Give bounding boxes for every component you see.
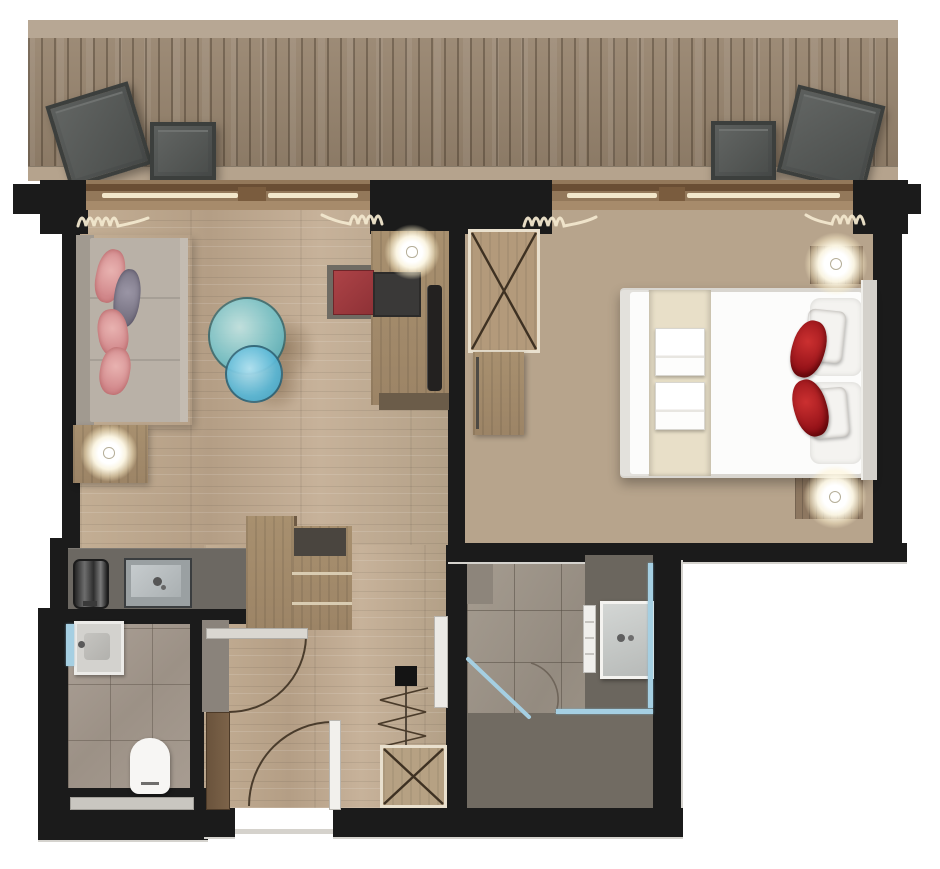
balcony: [0, 0, 940, 182]
red-seat: [333, 270, 374, 315]
ceiling-lamp-bedroom-bottom: [803, 465, 867, 529]
window-frame: [86, 184, 370, 191]
bathroom-corner-patch: [467, 562, 493, 604]
wc-bench: [70, 797, 194, 810]
wc-faucet-icon: [78, 641, 85, 648]
wc-sink-basin: [84, 633, 110, 660]
wall-bathroom-left: [446, 545, 467, 811]
minibar-fridge: [294, 528, 346, 556]
entry-threshold: [235, 829, 333, 834]
shower-floor: [467, 713, 653, 810]
chair-cushion: [158, 130, 208, 172]
toilet-flush-plate: [141, 782, 159, 785]
towel-set: [655, 328, 705, 376]
wall-left-protrusion: [13, 184, 50, 214]
wall-bedroom-right: [873, 234, 902, 543]
chair-cushion: [55, 91, 142, 178]
bathroom-door-leaf: [434, 616, 448, 708]
headboard: [861, 280, 877, 480]
bedroom-window: [552, 180, 853, 210]
window-sill-inner: [86, 201, 370, 210]
minibar-unit: [292, 526, 352, 630]
kitchen-tall-cabinet: [246, 516, 297, 632]
window-sill-inner: [552, 201, 853, 210]
bathroom-sink: [600, 601, 654, 679]
double-bed: [620, 288, 870, 478]
minibar-shelf: [292, 572, 352, 575]
toilet: [130, 738, 170, 794]
chair-cushion: [719, 129, 768, 172]
tv-panel-base: [379, 393, 449, 410]
bathroom-mirror: [648, 563, 653, 708]
floor-plan-canvas: [0, 0, 940, 869]
wall-bottom-entry-left: [204, 808, 235, 839]
living-window: [86, 180, 370, 210]
balcony-top-edge: [28, 20, 898, 40]
kitchen-sink: [124, 558, 192, 608]
wall-right-protrusion: [893, 184, 921, 214]
entry-door-leaf: [329, 720, 341, 810]
window-frame: [552, 184, 853, 191]
hall-door-threshold: [206, 628, 308, 639]
wc-door-leaf: [206, 712, 230, 810]
coffee-machine-tray: [83, 601, 97, 606]
ceiling-lamp-bedroom-top: [804, 232, 868, 296]
bedroom-dresser: [473, 352, 524, 435]
minibar-shelf: [292, 602, 352, 605]
towel-radiator-rung: [585, 653, 594, 655]
hall-wardrobe-x: [380, 745, 447, 808]
wc-mirror: [66, 624, 74, 666]
towel-set: [655, 382, 705, 430]
ceiling-lamp-living-desk: [384, 224, 440, 280]
wall-tv: [427, 285, 442, 391]
balcony-chair-left: [150, 122, 216, 180]
kitchen-counter: [68, 548, 250, 609]
towel-radiator-rung: [585, 621, 594, 623]
wall-bathroom-right: [653, 560, 683, 837]
balcony-chair-right: [711, 121, 776, 180]
towel-radiator-rung: [585, 637, 594, 639]
bathroom-faucet-icon: [617, 634, 625, 642]
window-glazing: [567, 193, 657, 198]
window-glazing: [687, 193, 840, 198]
window-glazing: [268, 193, 358, 198]
coffee-machine: [73, 559, 109, 609]
bedroom-wardrobe-x: [468, 229, 540, 353]
window-mullion: [659, 187, 685, 202]
shower-glass-screen: [556, 709, 653, 714]
window-mullion: [238, 187, 266, 202]
utility-box: [395, 666, 417, 686]
window-glazing: [102, 193, 238, 198]
wall-mid-top: [370, 180, 552, 234]
kitchen-faucet-icon: [153, 577, 162, 586]
round-glass-table-small: [225, 345, 283, 403]
dresser-handle: [476, 357, 479, 429]
wall-partition-living-bedroom: [448, 232, 465, 545]
ceiling-lamp-living-sofa: [80, 424, 138, 482]
wall-bottom-main: [333, 808, 683, 839]
sofa-front-edge: [180, 238, 188, 422]
wc-sink: [74, 621, 124, 675]
chair-cushion: [786, 94, 876, 184]
towel-radiator: [583, 605, 596, 673]
sofa: [76, 235, 192, 425]
